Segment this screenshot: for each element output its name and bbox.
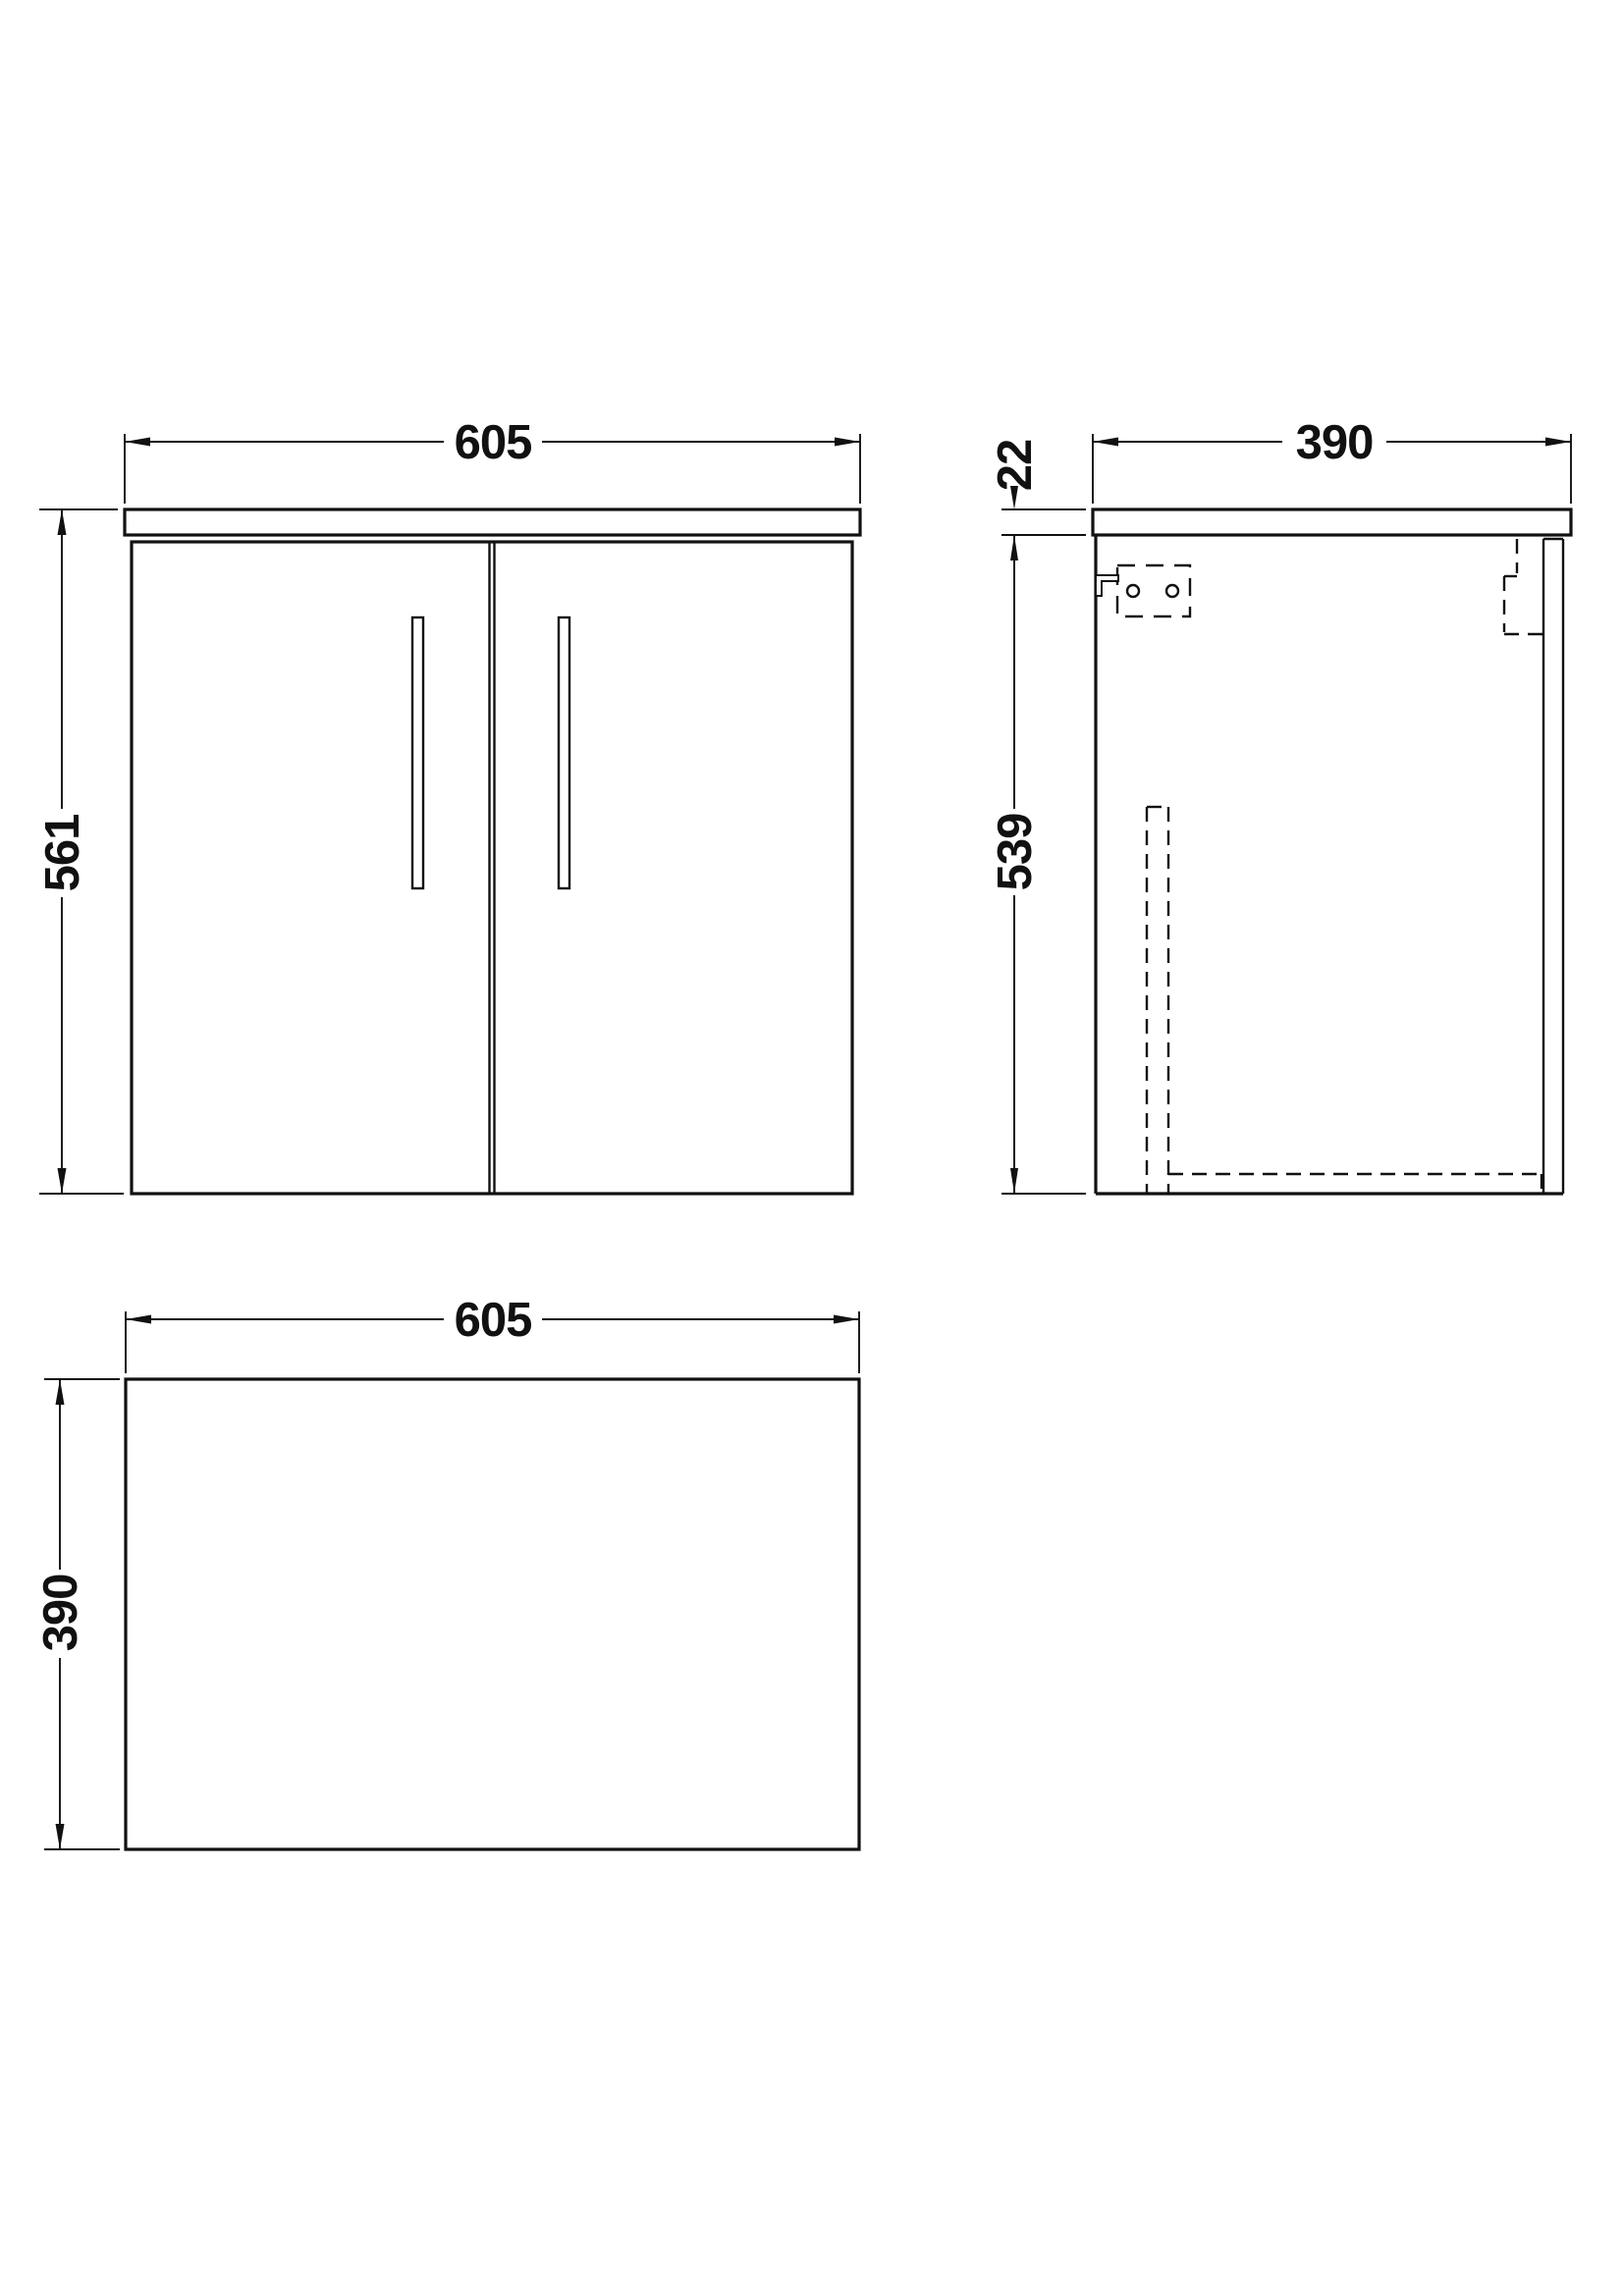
side-counter-thickness-dimension: 22 [989,440,1086,535]
hidden-door-edge [1147,807,1168,1194]
arrowhead-up [1010,535,1018,561]
plan-view: 605 390 [34,1294,859,1849]
arrowhead-down [1010,1168,1018,1194]
door-handle-left [412,617,423,888]
arrowhead-up [58,509,67,535]
plan-width-dimension: 605 [126,1294,859,1373]
arrowhead-up [56,1379,65,1405]
hanging-rail-recess [1504,539,1542,634]
arrowhead-left [125,438,150,447]
side-counter-thickness-label: 22 [989,440,1042,492]
front-height-label: 561 [36,815,89,892]
arrowhead-right [835,438,860,447]
arrowhead-down [58,1168,67,1194]
front-countertop [125,509,860,535]
bracket-hook [1096,575,1118,596]
side-depth-dimension: 390 [1093,416,1571,504]
arrowhead-right [834,1315,859,1324]
plan-countertop-outline [126,1379,859,1849]
drawing-sheet: 605 561 390 [0,0,1623,2296]
side-body-height-label: 539 [989,814,1042,891]
plan-depth-dimension: 390 [34,1379,120,1849]
plan-depth-label: 390 [34,1575,87,1652]
front-doors-body [132,542,852,1194]
vanity-technical-drawing: 605 561 390 [0,0,1623,2296]
front-elevation-view: 605 561 [36,416,860,1194]
plan-width-label: 605 [455,1294,532,1347]
bracket-screw-hole [1127,585,1139,597]
arrowhead-left [126,1315,151,1324]
door-handle-right [559,617,569,888]
arrowhead-left [1093,438,1118,447]
side-countertop [1093,509,1571,535]
bracket-screw-hole [1166,585,1178,597]
front-height-dimension: 561 [36,509,124,1194]
arrowhead-right [1545,438,1571,447]
front-width-label: 605 [455,416,532,469]
wall-bracket-detail [1096,565,1190,616]
hidden-bottom-panel [1168,1174,1542,1192]
side-depth-label: 390 [1296,416,1374,469]
side-body-height-dimension: 539 [989,535,1086,1194]
arrowhead-down [56,1824,65,1849]
front-width-dimension: 605 [125,416,860,504]
side-elevation-view: 390 22 539 [989,416,1571,1194]
